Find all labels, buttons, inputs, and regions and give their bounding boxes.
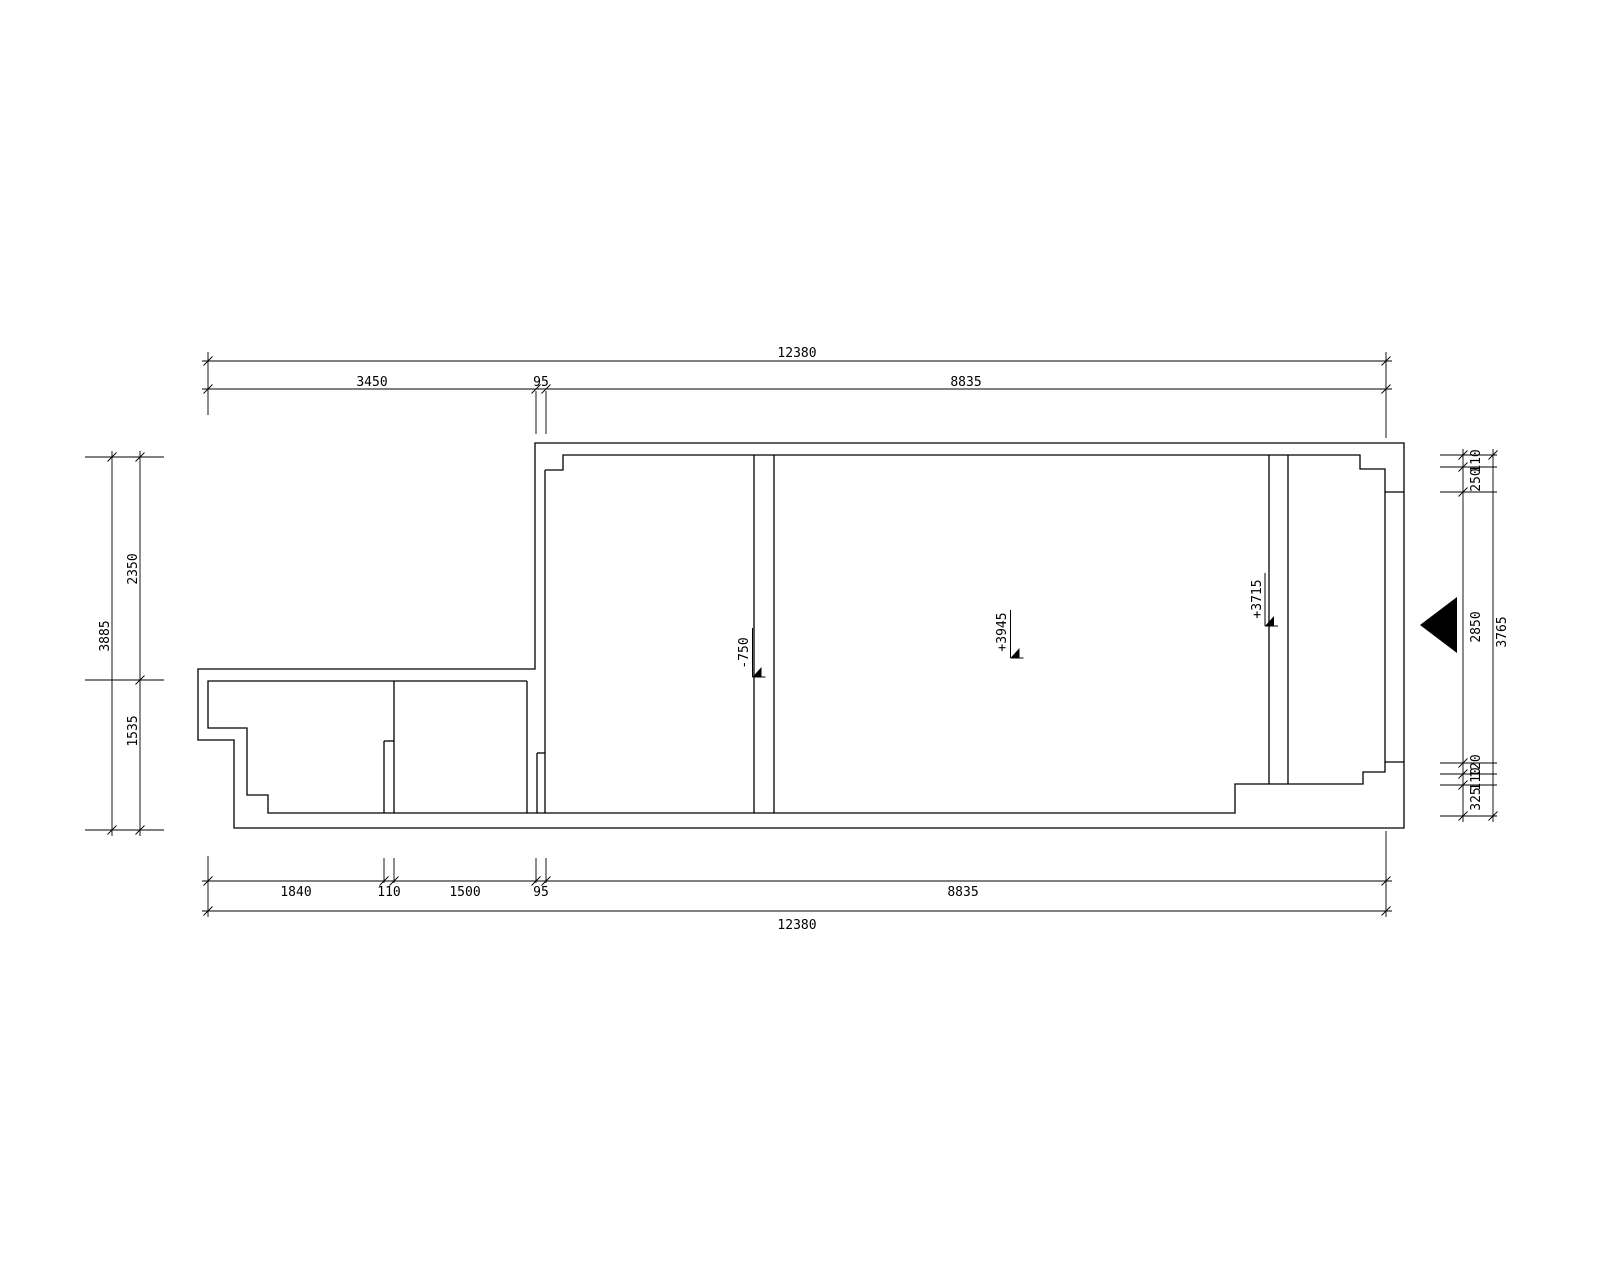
dimension-label: 2350	[126, 553, 141, 584]
dimension-label: 1535	[126, 715, 141, 746]
dimension-label: 250	[1469, 468, 1484, 491]
dimension-label: 3765	[1495, 616, 1510, 647]
dimension-label: 12380	[777, 346, 816, 361]
dimension-label: 95	[533, 885, 549, 900]
dimension-label: 12380	[777, 918, 816, 933]
dimension-label: 325	[1469, 787, 1484, 810]
dimension-label: 3450	[356, 375, 387, 390]
dimension-label: 1840	[280, 885, 311, 900]
elevation-label: +3945	[995, 612, 1010, 651]
dimension-label: 110	[377, 885, 400, 900]
dimension-label: 3885	[98, 620, 113, 651]
elevation-label: -750	[737, 637, 752, 668]
dimension-label: 2850	[1469, 611, 1484, 642]
dimension-label: 1500	[449, 885, 480, 900]
drawing-background	[0, 0, 1600, 1280]
dimension-label: 8835	[947, 885, 978, 900]
dimension-label: 110	[1469, 767, 1484, 790]
dimension-label: 8835	[950, 375, 981, 390]
elevation-label: +3715	[1250, 579, 1265, 618]
dimension-label: 95	[533, 375, 549, 390]
floor-plan-drawing: 1238034509588351840110150095883512380388…	[0, 0, 1600, 1280]
floor-plan-page: 1238034509588351840110150095883512380388…	[0, 0, 1600, 1280]
